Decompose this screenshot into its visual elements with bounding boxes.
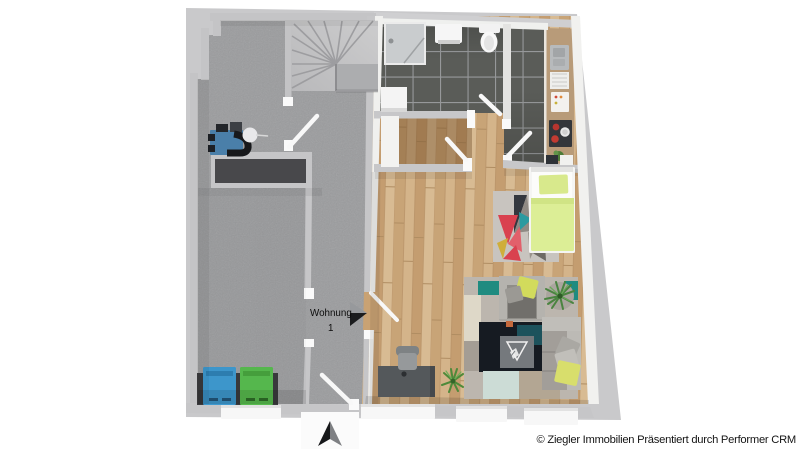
svg-text:1: 1 (328, 323, 333, 334)
svg-text:© Ziegler Immobilien Präsentie: © Ziegler Immobilien Präsentiert durch P… (537, 434, 796, 446)
svg-text:Wohnung: Wohnung (310, 308, 352, 319)
